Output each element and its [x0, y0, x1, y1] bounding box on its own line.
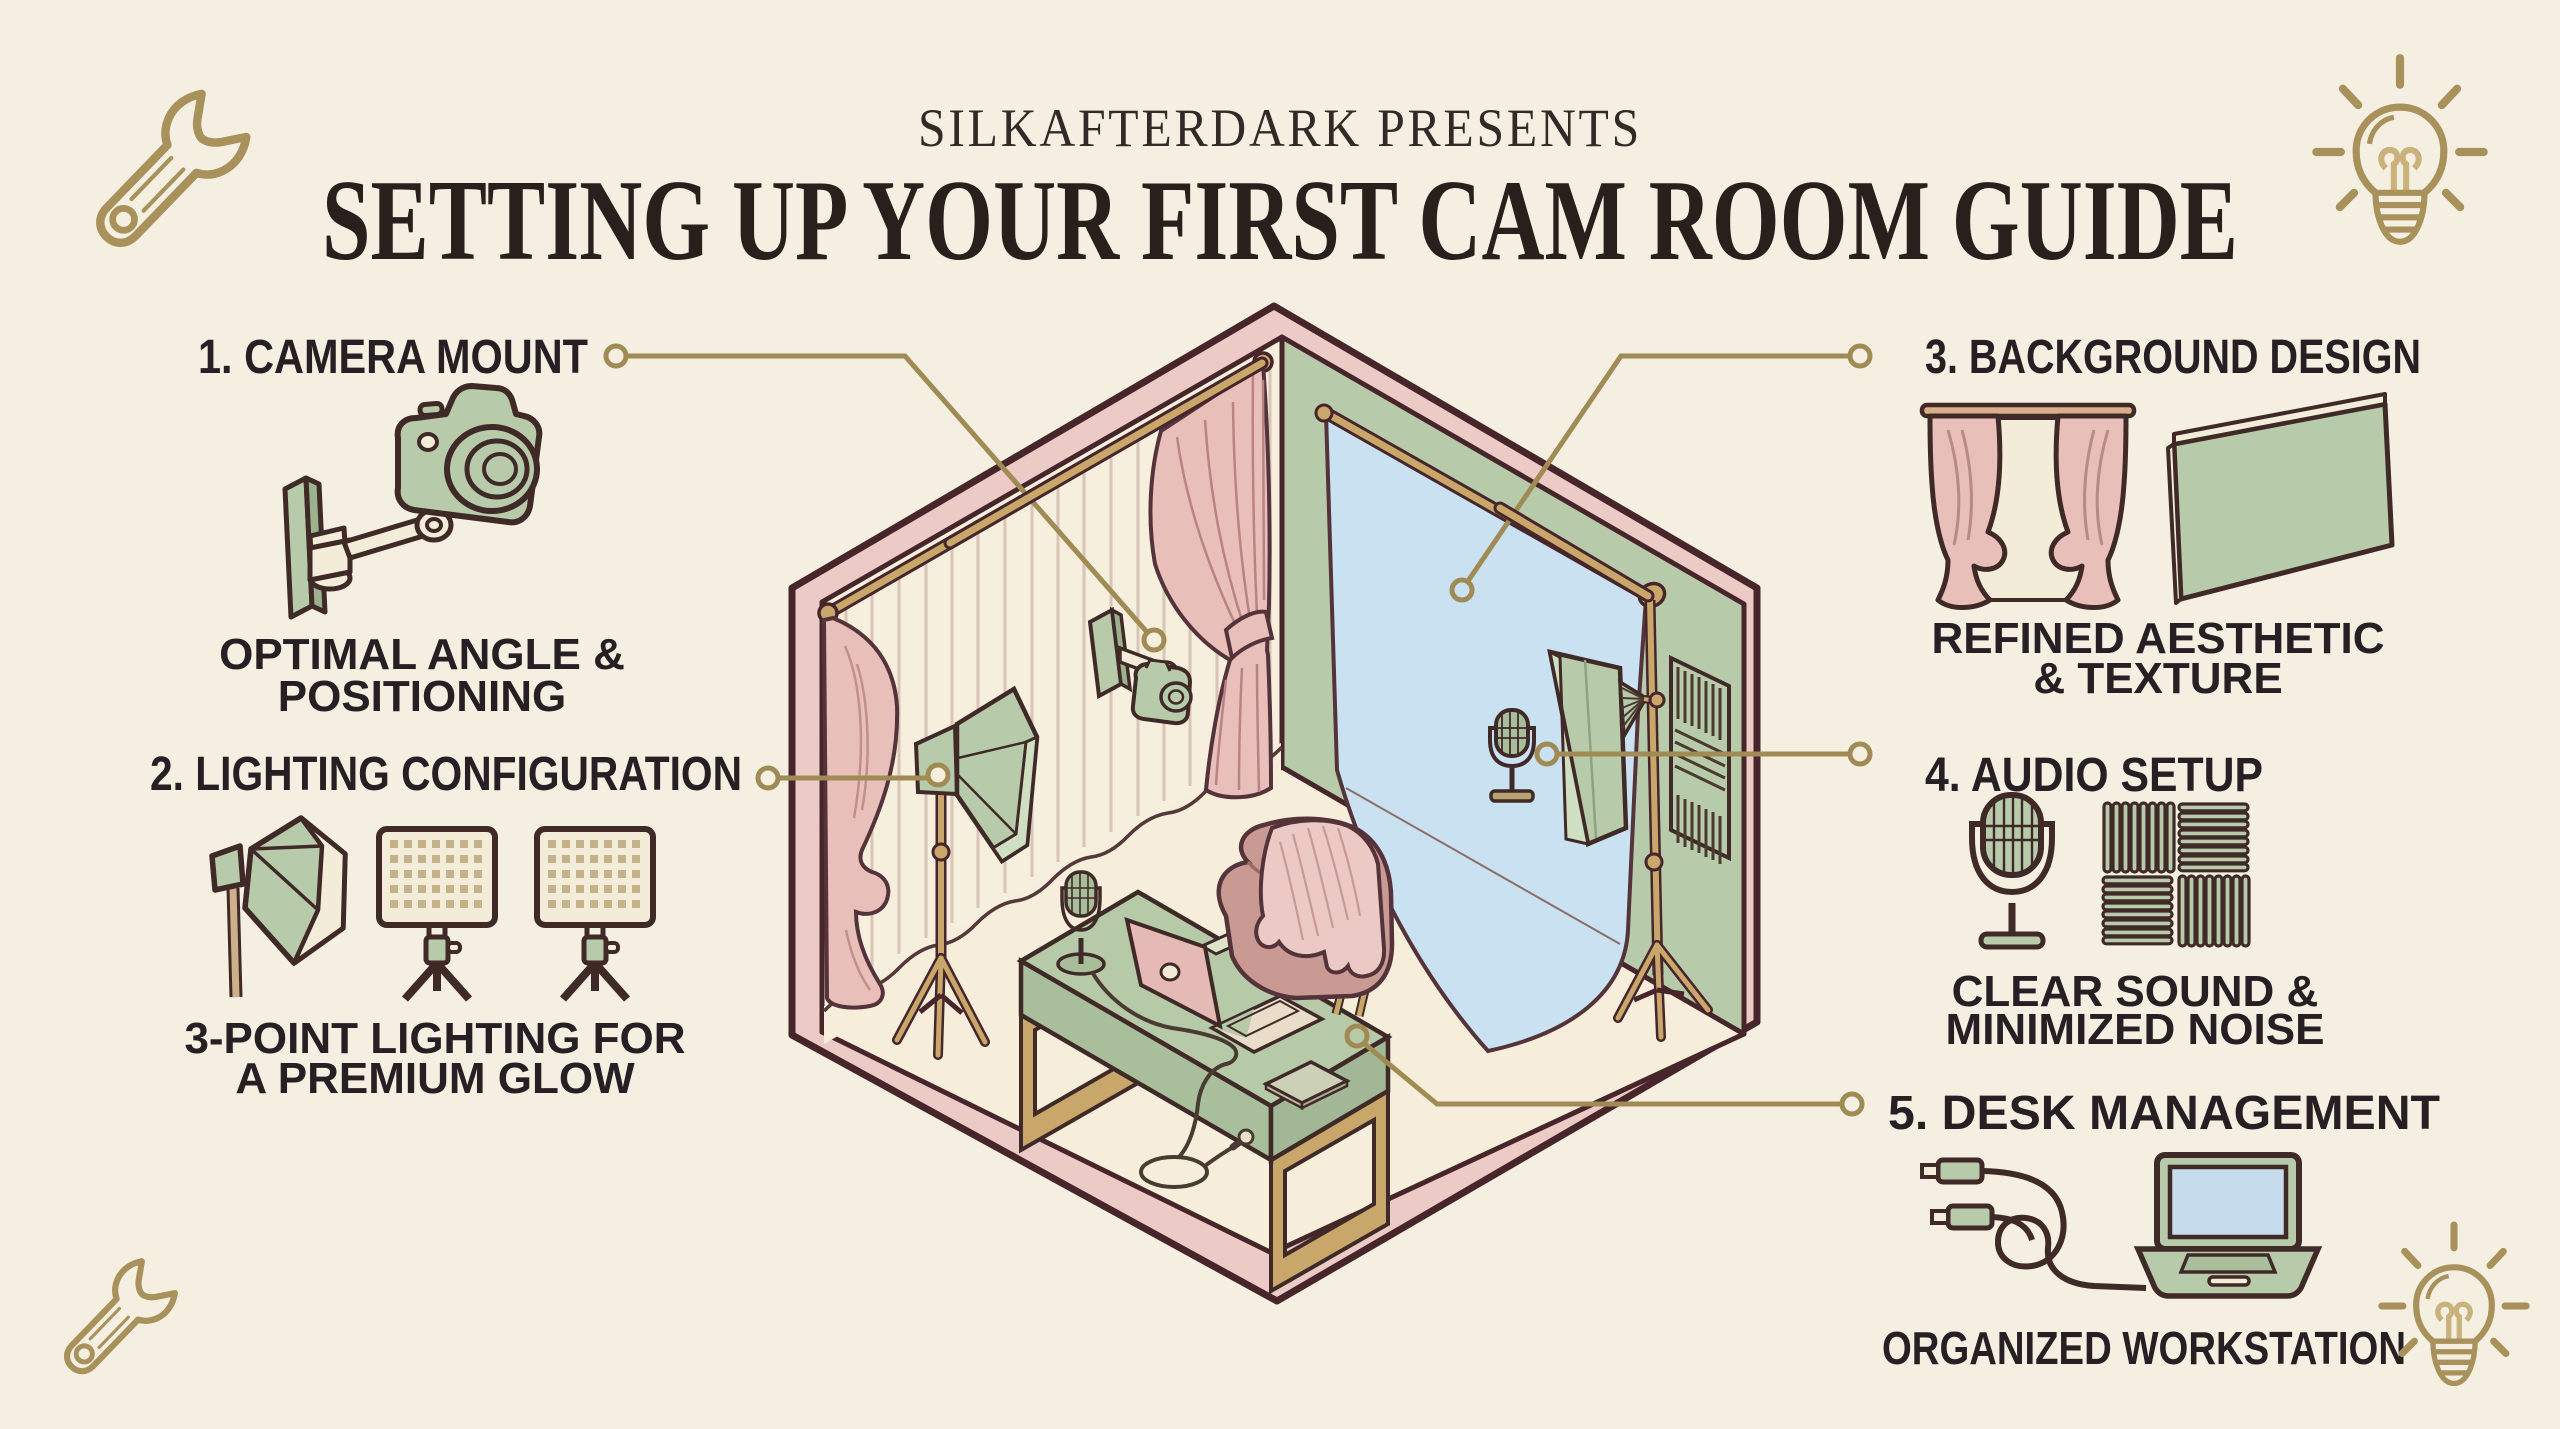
- svg-text:SETTING UP YOUR FIRST CAM ROOM: SETTING UP YOUR FIRST CAM ROOM GUIDE: [322, 157, 2238, 285]
- svg-text:2. LIGHTING CONFIGURATION: 2. LIGHTING CONFIGURATION: [150, 748, 742, 801]
- svg-text:1. CAMERA MOUNT: 1. CAMERA MOUNT: [198, 331, 588, 384]
- svg-text:POSITIONING: POSITIONING: [278, 672, 566, 721]
- svg-text:SILKAFTERDARK PRESENTS: SILKAFTERDARK PRESENTS: [918, 98, 1642, 158]
- svg-text:5. DESK MANAGEMENT: 5. DESK MANAGEMENT: [1888, 1087, 2440, 1140]
- svg-text:MINIMIZED NOISE: MINIMIZED NOISE: [1946, 1005, 2325, 1054]
- svg-text:ORGANIZED WORKSTATION: ORGANIZED WORKSTATION: [1882, 1322, 2406, 1374]
- svg-text:A PREMIUM GLOW: A PREMIUM GLOW: [235, 1054, 635, 1103]
- svg-text:& TEXTURE: & TEXTURE: [2033, 654, 2282, 703]
- svg-text:3. BACKGROUND DESIGN: 3. BACKGROUND DESIGN: [1925, 331, 2421, 384]
- svg-text:4. AUDIO SETUP: 4. AUDIO SETUP: [1925, 749, 2263, 802]
